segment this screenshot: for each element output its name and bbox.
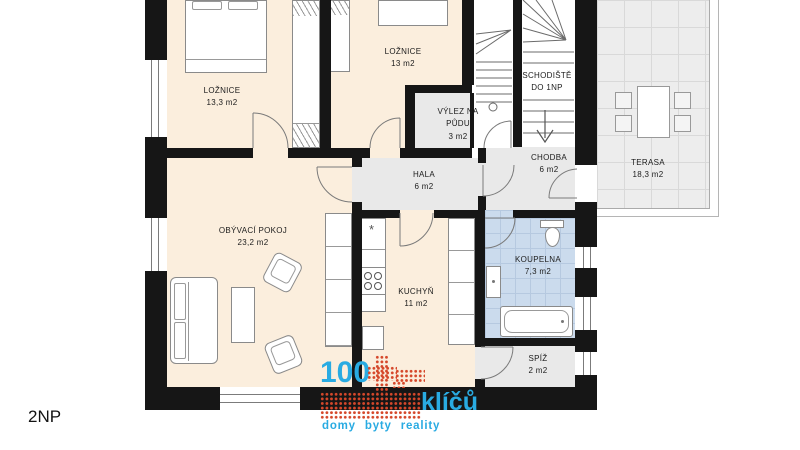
room-name: LOŽNICE xyxy=(385,46,422,58)
room-name: OBÝVACÍ POKOJ xyxy=(219,225,287,237)
room-name: CHODBA xyxy=(531,152,567,164)
stairs-left-flight xyxy=(476,30,512,111)
floor-plan: * xyxy=(0,0,800,450)
room-name: SPÍŽ xyxy=(529,353,548,365)
door-bedroom2 xyxy=(370,118,400,148)
logo-word: klíčů xyxy=(421,390,478,415)
room-area: 23,2 m2 xyxy=(219,237,287,249)
room-name: LOŽNICE xyxy=(204,85,241,97)
logo-number: 100 xyxy=(320,358,370,388)
room-label-staircase: SCHODIŠTĚ DO 1NP xyxy=(519,70,575,95)
logo-dot-band xyxy=(320,392,421,419)
room-name: SCHODIŠTĚ DO 1NP xyxy=(519,70,575,95)
room-area: 3 m2 xyxy=(434,131,482,143)
room-label-bedroom1: LOŽNICE 13,3 m2 xyxy=(204,85,241,110)
key-icon xyxy=(392,381,406,388)
room-area: 6 m2 xyxy=(531,164,567,176)
door-corridor xyxy=(483,165,514,196)
room-area: 11 m2 xyxy=(398,298,434,310)
door-arcs xyxy=(253,113,577,379)
logo: 100 klíčů domy byty reality xyxy=(315,345,495,440)
room-area: 7,3 m2 xyxy=(515,266,561,278)
room-label-corridor: CHODBA 6 m2 xyxy=(531,152,567,177)
room-area: 13,3 m2 xyxy=(204,97,241,109)
key-icon xyxy=(367,366,397,381)
room-area: 2 m2 xyxy=(529,365,548,377)
room-area: 18,3 m2 xyxy=(631,169,665,181)
door-bedroom1 xyxy=(253,113,288,148)
room-label-terrace: TERASA 18,3 m2 xyxy=(631,157,665,182)
room-label-living-room: OBÝVACÍ POKOJ 23,2 m2 xyxy=(219,225,287,250)
door-stairs-landing xyxy=(484,121,511,148)
floor-label: 2NP xyxy=(28,407,61,427)
door-bathroom xyxy=(485,218,515,248)
logo-tagline: domy byty reality xyxy=(322,420,440,432)
room-area: 6 m2 xyxy=(413,181,435,193)
room-name: KOUPELNA xyxy=(515,254,561,266)
room-label-hall: HALA 6 m2 xyxy=(413,169,435,194)
room-area: 13 m2 xyxy=(385,58,422,70)
room-label-bedroom2: LOŽNICE 13 m2 xyxy=(385,46,422,71)
door-living xyxy=(317,167,352,202)
room-name: TERASA xyxy=(631,157,665,169)
room-name: HALA xyxy=(413,169,435,181)
room-label-kitchen: KUCHYŇ 11 m2 xyxy=(398,286,434,311)
room-label-attic-access: VÝLEZ NA PŮDU 3 m2 xyxy=(434,106,482,143)
stairs-right-flight xyxy=(523,0,574,133)
stairs-down-arrow xyxy=(537,110,553,142)
room-name: VÝLEZ NA PŮDU xyxy=(434,106,482,131)
door-kitchen xyxy=(400,213,433,246)
room-label-pantry: SPÍŽ 2 m2 xyxy=(529,353,548,378)
room-label-bathroom: KOUPELNA 7,3 m2 xyxy=(515,254,561,279)
room-name: KUCHYŇ xyxy=(398,286,434,298)
